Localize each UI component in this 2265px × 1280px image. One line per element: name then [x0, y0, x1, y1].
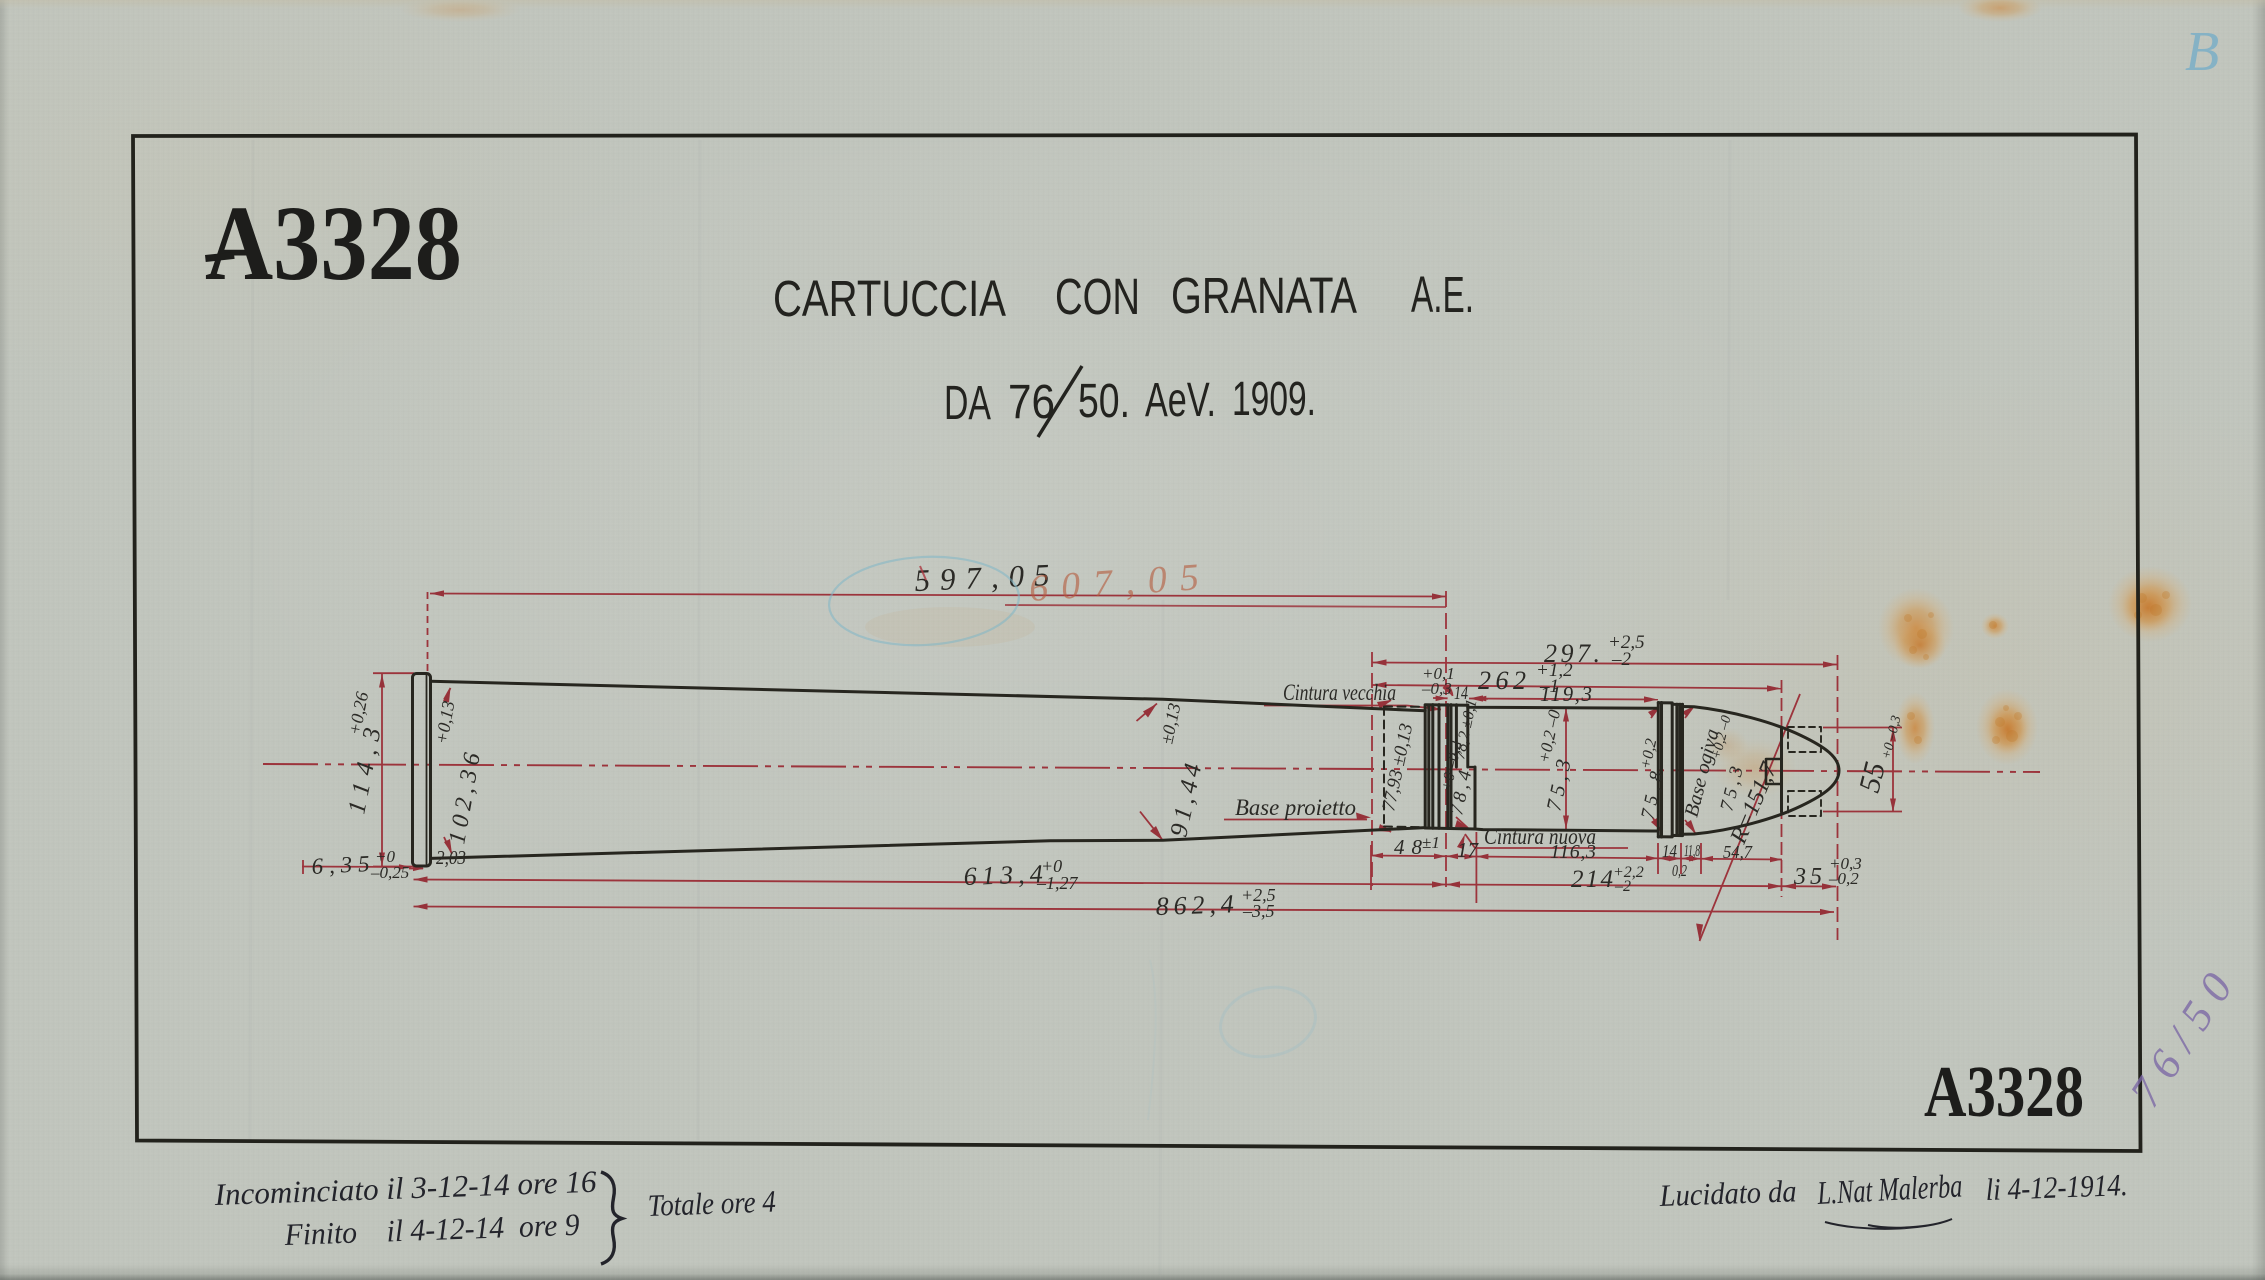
svg-text:Incominciato il 3-12-14 ore: Incominciato il 3-12-14 ore 16 — [213, 1164, 597, 1212]
svg-text:GRANATA: GRANATA — [1171, 267, 1357, 324]
svg-text:114,3: 114,3 — [343, 726, 386, 817]
svg-text:Cintura nuova: Cintura nuova — [1484, 824, 1596, 849]
svg-text:14: 14 — [1662, 841, 1677, 861]
svg-text:55: 55 — [1853, 759, 1892, 796]
svg-text:–0,3: –0,3 — [1421, 679, 1452, 698]
svg-text:Base proietto: Base proietto — [1235, 795, 1356, 820]
svg-text:–0,2: –0,2 — [1828, 869, 1859, 888]
svg-text:AeV.: AeV. — [1145, 374, 1216, 427]
svg-text:119,3: 119,3 — [1540, 682, 1592, 706]
svg-text:CON: CON — [1055, 268, 1140, 325]
svg-text:862,4: 862,4 — [1155, 889, 1234, 921]
svg-text:–2: –2 — [1614, 878, 1631, 895]
svg-text:A3328: A3328 — [205, 185, 462, 303]
svg-text:Cintura vecchia: Cintura vecchia — [1283, 680, 1396, 705]
svg-text:Finito il 4-12-14 ore 9: Finito il 4-12-14 ore 9 — [283, 1207, 580, 1252]
svg-text:2,03: 2,03 — [436, 847, 466, 869]
svg-text:Totale ore 4: Totale ore 4 — [647, 1184, 776, 1223]
svg-text:–1,27: –1,27 — [1036, 873, 1079, 893]
svg-text:–0,25: –0,25 — [370, 863, 409, 882]
svg-text:+0,2 –0: +0,2 –0 — [1534, 708, 1564, 765]
svg-text:607,05: 607,05 — [1028, 556, 1201, 610]
svg-text:B: B — [2185, 21, 2219, 83]
svg-text:L.Nat Malerba: L.Nat Malerba — [1816, 1168, 1963, 1212]
svg-text:11,8: 11,8 — [1684, 841, 1700, 860]
svg-text:CARTUCCIA: CARTUCCIA — [773, 270, 1006, 327]
svg-text:li 4-12-1914.: li 4-12-1914. — [1985, 1167, 2128, 1207]
svg-text:214: 214 — [1571, 866, 1613, 893]
svg-text:613,4: 613,4 — [963, 859, 1043, 891]
svg-text:75,3: 75,3 — [1541, 757, 1575, 813]
svg-text:A.E.: A.E. — [1411, 266, 1474, 323]
svg-text:50.: 50. — [1078, 375, 1130, 428]
svg-text:6,35: 6,35 — [311, 851, 370, 879]
svg-text:–3,5: –3,5 — [1242, 901, 1275, 921]
svg-text:Lucidato da: Lucidato da — [1658, 1173, 1797, 1213]
svg-text:±1: ±1 — [1422, 833, 1440, 852]
svg-text:A3328: A3328 — [1924, 1051, 2084, 1132]
svg-text:17: 17 — [1457, 838, 1480, 862]
svg-text:DA: DA — [944, 377, 991, 430]
svg-text:262: 262 — [1478, 666, 1526, 695]
svg-text:0,2: 0,2 — [1672, 861, 1687, 880]
svg-text:+0,13: +0,13 — [431, 699, 458, 745]
svg-text:±0,13: ±0,13 — [1156, 701, 1184, 746]
svg-text:1909.: 1909. — [1232, 373, 1316, 426]
svg-text:75,8: 75,8 — [1637, 769, 1668, 821]
svg-text:–2: –2 — [1611, 649, 1632, 670]
svg-text:91,44: 91,44 — [1165, 761, 1207, 839]
